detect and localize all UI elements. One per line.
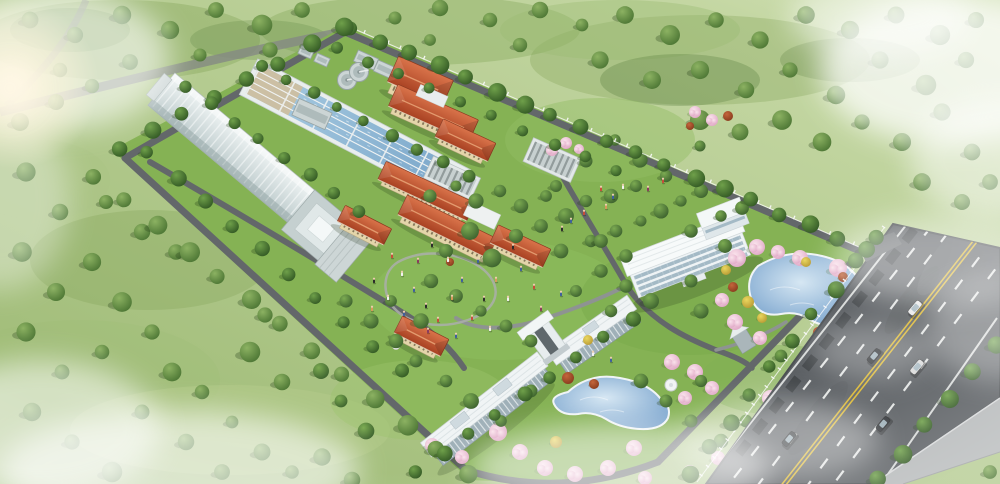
rendering-canvas: [0, 0, 1000, 484]
aerial-plant-rendering: [0, 0, 1000, 484]
